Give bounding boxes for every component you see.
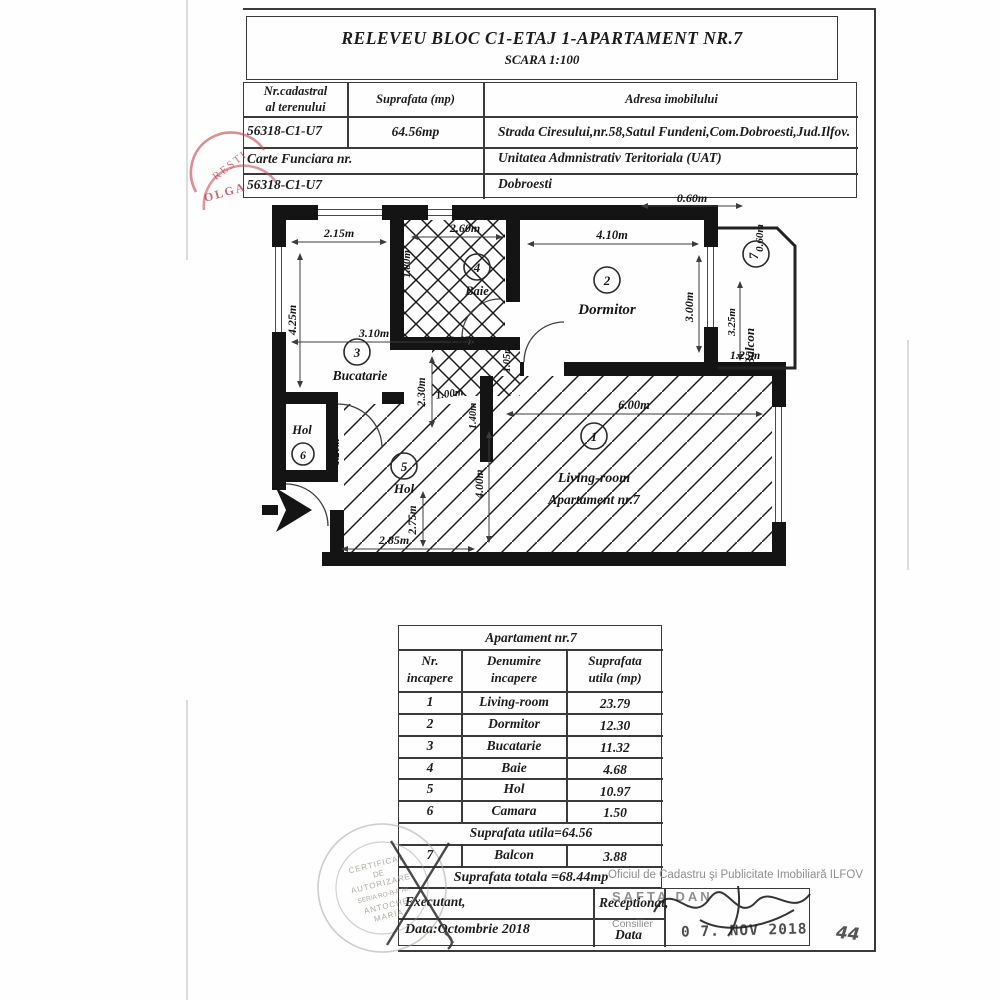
dim-living-width: 6.00m xyxy=(618,398,650,412)
apt-header-name-line2: incapere xyxy=(491,670,537,687)
dim-bucatarie-width: 2.15m xyxy=(323,226,354,240)
table-row-area: 4.68 xyxy=(567,759,663,780)
room-label-balcon: Balcon xyxy=(742,328,757,367)
cadastral-table: Nr.cadastral al terenului Suprafata (mp)… xyxy=(243,82,857,198)
room-number-bucatarie: 3 xyxy=(353,345,361,360)
table-row-area: 23.79 xyxy=(567,693,663,715)
document-scale: SCARA 1:100 xyxy=(505,52,580,68)
dim-camara-width: 1.20m xyxy=(331,439,342,466)
room-label-baie: Baie xyxy=(464,284,489,298)
dim-baie-width: 2.60m xyxy=(449,221,480,235)
table-row-nr: 5 xyxy=(399,778,461,800)
scan-edge-left-bottom xyxy=(186,700,188,1000)
balcony-row-area: 3.88 xyxy=(567,846,663,868)
apt-header-area: Suprafata utila (mp) xyxy=(567,649,663,691)
table-row-area: 1.50 xyxy=(567,802,663,824)
room-camara: Hol 6 xyxy=(291,423,314,465)
room-number-dormitor: 2 xyxy=(603,273,611,288)
cadastral-hline-2 xyxy=(244,147,858,149)
table-row-name: Dormitor xyxy=(462,713,566,735)
dim-hol-width: 2.85m xyxy=(378,533,409,547)
dim-baie-height: 1.80m xyxy=(401,250,413,278)
room-number-camara: 6 xyxy=(300,448,306,462)
dim-balcon-depth-top: 0.60m xyxy=(677,192,707,205)
table-row-nr: 2 xyxy=(399,713,461,735)
room-label-camara: Hol xyxy=(291,423,312,437)
dim-hol-door: 1.40m xyxy=(468,403,479,430)
apartment-table-title: Apartament nr.7 xyxy=(399,626,663,649)
data-right-label: Data xyxy=(615,927,642,943)
table-row-nr: 1 xyxy=(399,691,461,713)
table-row-area: 10.97 xyxy=(567,781,663,803)
dim-dormitor-width: 4.10m xyxy=(595,228,628,242)
cadastral-hline-1 xyxy=(244,116,858,118)
cadastral-header-number-line2: al terenului xyxy=(265,100,325,116)
surface-value: 64.56mp xyxy=(348,116,483,147)
dim-living-height: 4.00m xyxy=(474,469,486,499)
dim-hol-upper-width: 1.00m xyxy=(435,386,465,402)
red-stamp-name-text: OLGA xyxy=(202,179,248,204)
apt-header-name: Denumire incapere xyxy=(462,649,566,691)
room-number-balcon: 7 xyxy=(747,252,761,259)
room-balcon: 7 Balcon xyxy=(742,241,769,367)
room-label-hol: Hol xyxy=(393,481,415,496)
dim-hol-height: 2.75m xyxy=(407,505,419,535)
title-box: RELEVEU BLOC C1-ETAJ 1-APARTAMENT NR.7 S… xyxy=(246,16,838,80)
executant-signature xyxy=(375,835,475,955)
cadastral-header-address: Adresa imobilului xyxy=(485,83,858,116)
room-bucatarie: 3 Bucatarie xyxy=(332,339,388,383)
page-border-right xyxy=(874,8,876,952)
receptionat-signature xyxy=(642,866,822,941)
apt-header-name-line1: Denumire xyxy=(487,653,541,670)
room-number-hol: 5 xyxy=(401,459,408,474)
floor-plan: 2.15m 4.25m 2.60m 1.80m 4.10m 3.00m 0.60… xyxy=(262,192,802,582)
room-sublabel-living: Apartament nr.7 xyxy=(547,492,641,507)
entrance-arrow-icon xyxy=(262,488,312,532)
document-title: RELEVEU BLOC C1-ETAJ 1-APARTAMENT NR.7 xyxy=(341,28,742,49)
dim-balcon-depth-side: 0.60m xyxy=(754,224,766,252)
uat-value: Dobroesti xyxy=(498,176,552,192)
table-row-name: Hol xyxy=(462,778,566,800)
cadastral-hline-3 xyxy=(244,173,858,175)
table-row-area: 12.30 xyxy=(567,715,663,737)
apt-header-nr: Nr. incapere xyxy=(399,649,461,691)
scan-edge-right xyxy=(907,340,909,570)
dim-dormitor-height: 3.00m xyxy=(682,292,696,323)
dim-corridor-door: 1.05m xyxy=(502,346,513,373)
apt-header-nr-line1: Nr. xyxy=(422,653,439,670)
dim-balcon-height: 3.25m xyxy=(726,308,738,337)
apt-header-nr-line2: incapere xyxy=(407,670,453,687)
cadastral-header-surface: Suprafata (mp) xyxy=(348,83,483,116)
cadastral-header-number-line1: Nr.cadastral xyxy=(264,84,328,100)
table-row-area: 11.32 xyxy=(567,737,663,759)
scanned-document-page: RELEVEU BLOC C1-ETAJ 1-APARTAMENT NR.7 S… xyxy=(0,0,1000,1000)
balcony-row-name: Balcon xyxy=(462,844,566,866)
table-row-nr: 4 xyxy=(399,757,461,778)
room-number-baie: 4 xyxy=(473,260,481,275)
room-label-living: Living-room xyxy=(557,471,630,486)
dim-bucatarie-lower-height: 2.30m xyxy=(416,377,428,407)
dim-bucatarie-total-width: 3.10m xyxy=(358,326,389,340)
table-row-nr: 3 xyxy=(399,735,461,757)
room-dormitor: 2 Dormitor xyxy=(577,267,636,318)
page-number: 44 xyxy=(835,923,861,945)
room-label-dormitor: Dormitor xyxy=(577,302,636,318)
page-border-top xyxy=(243,8,875,10)
uat-label: Unitatea Admnistrativ Teritoriala (UAT) xyxy=(498,150,722,166)
room-number-living: 1 xyxy=(591,429,598,444)
apt-header-area-line1: Suprafata xyxy=(588,653,641,670)
table-row-name: Bucatarie xyxy=(462,735,566,757)
apt-header-area-line2: utila (mp) xyxy=(588,670,641,687)
table-row-name: Camara xyxy=(462,800,566,822)
table-row-name: Living-room xyxy=(462,691,566,713)
dim-bucatarie-height: 4.25m xyxy=(285,305,299,336)
cadastral-header-number: Nr.cadastral al terenului xyxy=(244,83,347,116)
address-value: Strada Ciresului,nr.58,Satul Fundeni,Com… xyxy=(498,124,850,140)
dim-corridor-width: 1.65m xyxy=(449,333,479,347)
room-label-bucatarie: Bucatarie xyxy=(332,368,388,383)
table-row-name: Baie xyxy=(462,757,566,778)
